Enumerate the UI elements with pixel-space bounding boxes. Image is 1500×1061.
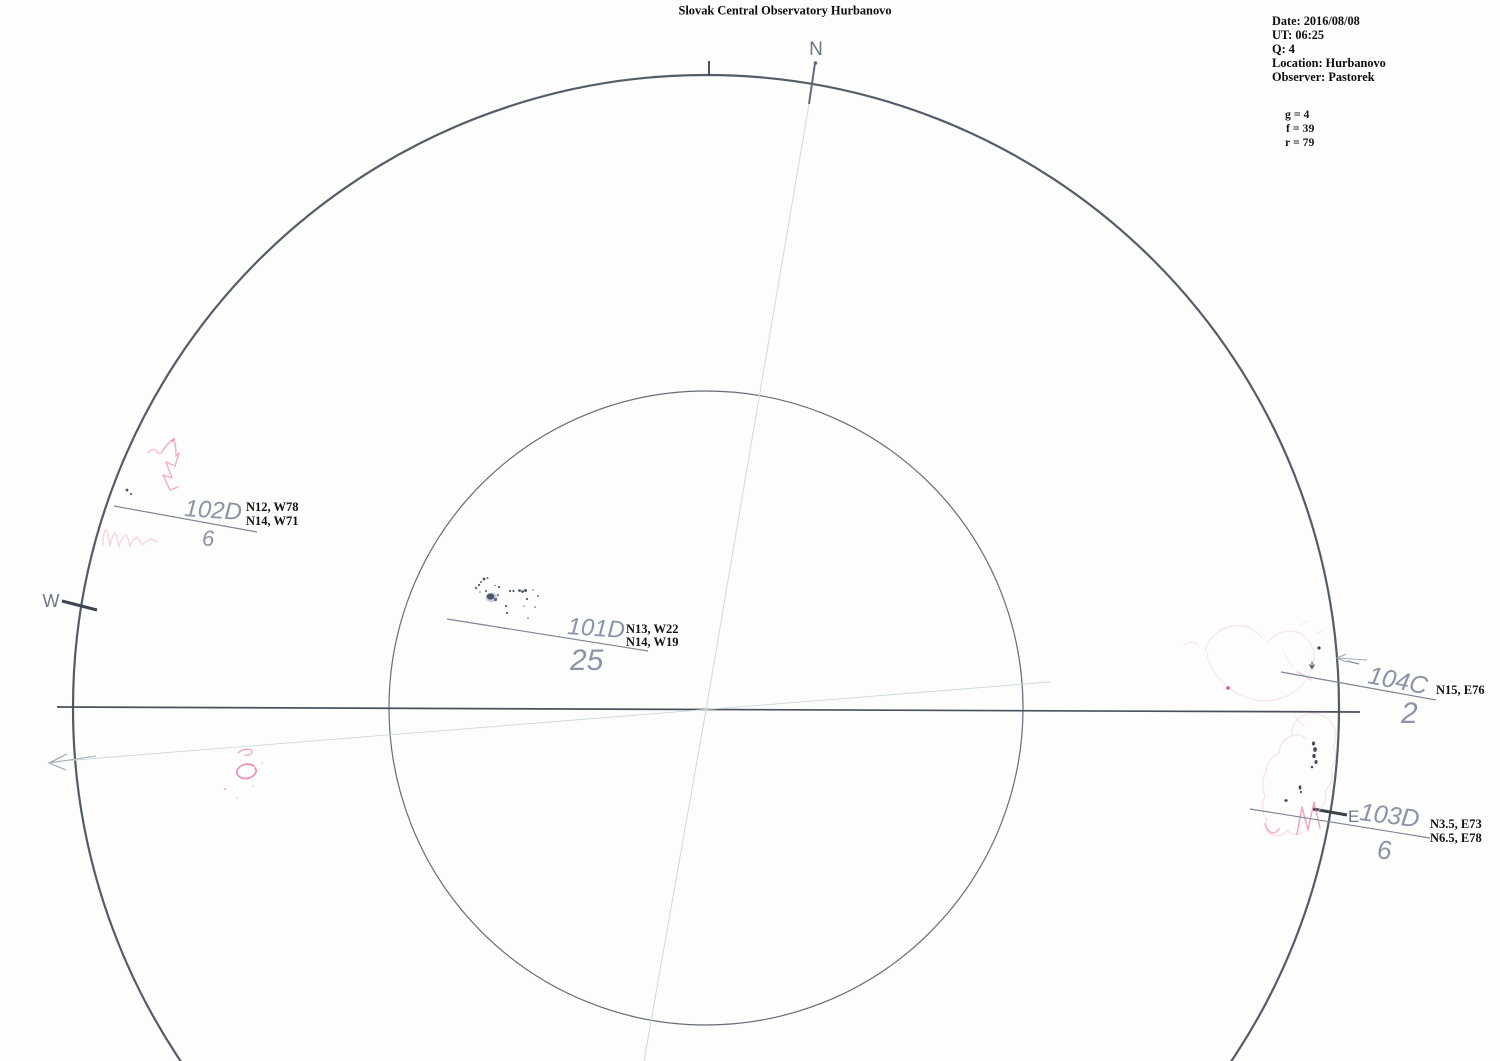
svg-text:102D: 102D bbox=[184, 495, 243, 526]
svg-text:N15, E76: N15, E76 bbox=[1436, 683, 1485, 697]
svg-text:W: W bbox=[43, 591, 60, 611]
svg-text:N14, W71: N14, W71 bbox=[246, 514, 299, 528]
svg-text:N3.5, E73: N3.5, E73 bbox=[1430, 817, 1482, 831]
svg-text:N6.5, E78: N6.5, E78 bbox=[1430, 831, 1482, 845]
svg-text:6: 6 bbox=[202, 526, 215, 551]
svg-text:Date: 2016/08/08: Date: 2016/08/08 bbox=[1272, 14, 1360, 28]
svg-text:N12, W78: N12, W78 bbox=[246, 500, 299, 514]
svg-text:25: 25 bbox=[569, 644, 604, 677]
svg-text:101D: 101D bbox=[567, 613, 626, 644]
svg-text:Q: 4: Q: 4 bbox=[1272, 42, 1295, 56]
svg-text:f = 39: f = 39 bbox=[1286, 121, 1314, 135]
svg-text:Slovak Central Observatory Hur: Slovak Central Observatory Hurbanovo bbox=[678, 4, 891, 18]
svg-text:r = 79: r = 79 bbox=[1285, 135, 1315, 149]
svg-text:N14, W19: N14, W19 bbox=[626, 635, 679, 649]
svg-text:6: 6 bbox=[1377, 835, 1392, 865]
svg-text:2: 2 bbox=[1400, 697, 1418, 730]
svg-text:Observer: Pastorek: Observer: Pastorek bbox=[1272, 70, 1375, 84]
svg-text:N13, W22: N13, W22 bbox=[626, 622, 679, 636]
svg-text:UT: 06:25: UT: 06:25 bbox=[1272, 28, 1324, 42]
svg-text:g = 4: g = 4 bbox=[1285, 107, 1310, 121]
svg-text:N: N bbox=[809, 39, 823, 60]
svg-text:Location: Hurbanovo: Location: Hurbanovo bbox=[1272, 56, 1386, 70]
